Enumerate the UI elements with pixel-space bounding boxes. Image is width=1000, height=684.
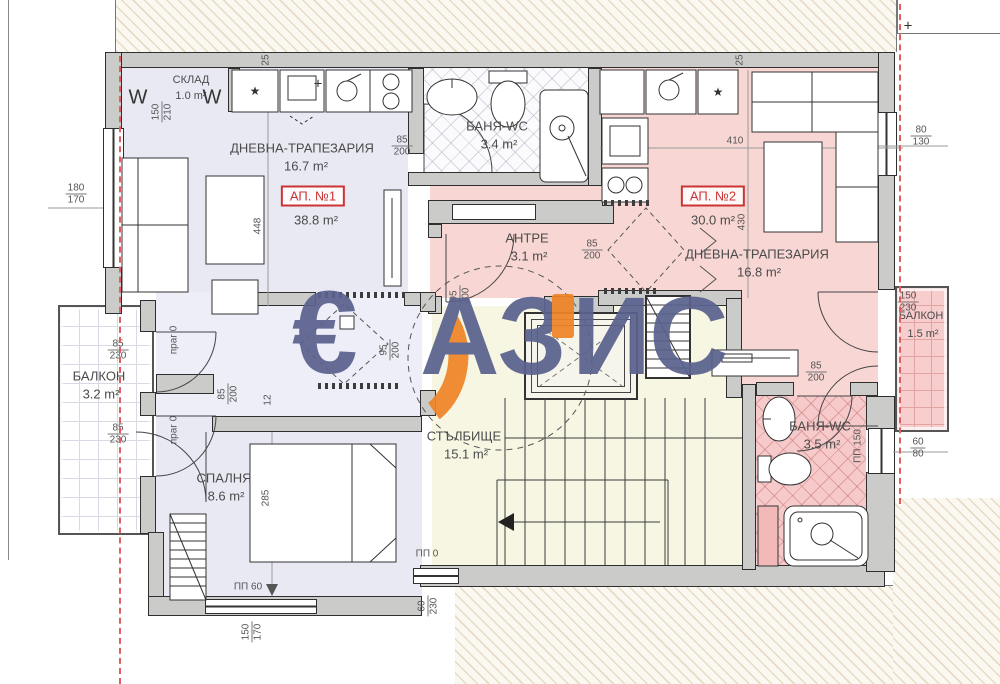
door-track [318,383,398,389]
room-area-bath1: 3.4 m² [481,137,518,152]
label-pp60: ПП 60 [234,582,262,593]
boundary-dashed-right [899,4,901,504]
dim-150-210: 150210 [151,102,174,123]
room-label-sklad: СКЛАД [173,74,210,86]
dim-95-200: 95200 [449,286,472,307]
label-prag0: праг 0 [169,416,180,445]
elevator-cross [540,326,622,386]
door-track [604,288,656,294]
dim-85-230: 85230 [108,423,129,446]
apartment2-badge: АП. №2 [681,186,745,207]
room-label-living1: ДНЕВНА-ТРАПЕЗАРИЯ [230,141,374,156]
floor-plan: W W ★ ★ + + СКЛАД 1.0 m² ДНЕВНА-ТРАПЕЗАР… [0,0,1000,684]
dim-180-170: 180170 [66,183,87,206]
room-label-stairs: СТЪЛБИЩЕ [427,429,501,444]
room-area-stairs: 15.1 m² [444,447,488,462]
door-track [604,200,652,206]
freezer-star-icon: ★ [250,84,261,98]
boundary-dashed-left [119,56,121,684]
stairs-direction-arrow [498,513,514,531]
room-area-living2: 16.8 m² [737,265,781,280]
dim-410: 410 [727,136,744,147]
dim-85-200: 85200 [217,384,240,405]
dim-95-200: 95200 [379,340,402,361]
survey-cross-icon: + [314,76,323,93]
door-track [318,292,406,298]
dim-150-170: 150170 [241,622,264,643]
room-area-antre: 3.1 m² [511,249,548,264]
room-area-bedroom: 8.6 m² [208,489,245,504]
electric-box [340,316,354,329]
furniture-apt2 [646,72,878,378]
apartment1-area: 38.8 m² [294,213,338,228]
dim-85-200: 85200 [806,361,827,384]
label-prag0: праг 0 [169,326,180,355]
room-area-bath2: 3.5 m² [804,437,841,452]
dim-85-200: 85200 [392,135,413,158]
dim-430: 430 [737,214,748,231]
dim-285: 285 [261,490,272,507]
label-pp150: ПП 150 [853,429,864,463]
room-label-living2: ДНЕВНА-ТРАПЕЗАРИЯ [685,247,829,262]
survey-cross-icon: + [904,18,913,35]
freezer-star-icon: ★ [713,85,724,99]
dim-60-230: 60230 [417,596,440,617]
folding-doors [300,208,684,450]
room-area-sklad: 1.0 m² [175,90,206,102]
room-label-antre: АНТРЕ [505,231,548,246]
room-area-balcony2: 1.5 m² [907,328,938,340]
room-label-balcony1: БАЛКОН [73,369,126,384]
apartment2-area: 30.0 m² [691,213,735,228]
label-pp0: ПП 0 [416,549,439,560]
dim-80-130: 80130 [911,125,932,148]
dim-60-80: 6080 [910,437,925,460]
dim-85-230: 85230 [108,339,129,362]
stairs-treads [497,398,742,565]
dim-12: 12 [263,394,274,405]
apartment1-badge: АП. №1 [281,186,345,207]
hook-icon: W [129,87,148,110]
room-area-balcony1: 3.2 m² [83,387,120,402]
dim-448: 448 [253,218,264,235]
room-area-living1: 16.7 m² [284,159,328,174]
room-label-bedroom: СПАЛНЯ [197,471,252,486]
room-label-bath1: БАНЯ-WC [466,119,528,134]
dim-25: 25 [261,54,272,65]
dim-85-200: 85200 [582,239,603,262]
dim-25: 25 [735,54,746,65]
dim-arrow [266,584,278,596]
room-label-bath2: БАНЯ-WC [789,419,851,434]
